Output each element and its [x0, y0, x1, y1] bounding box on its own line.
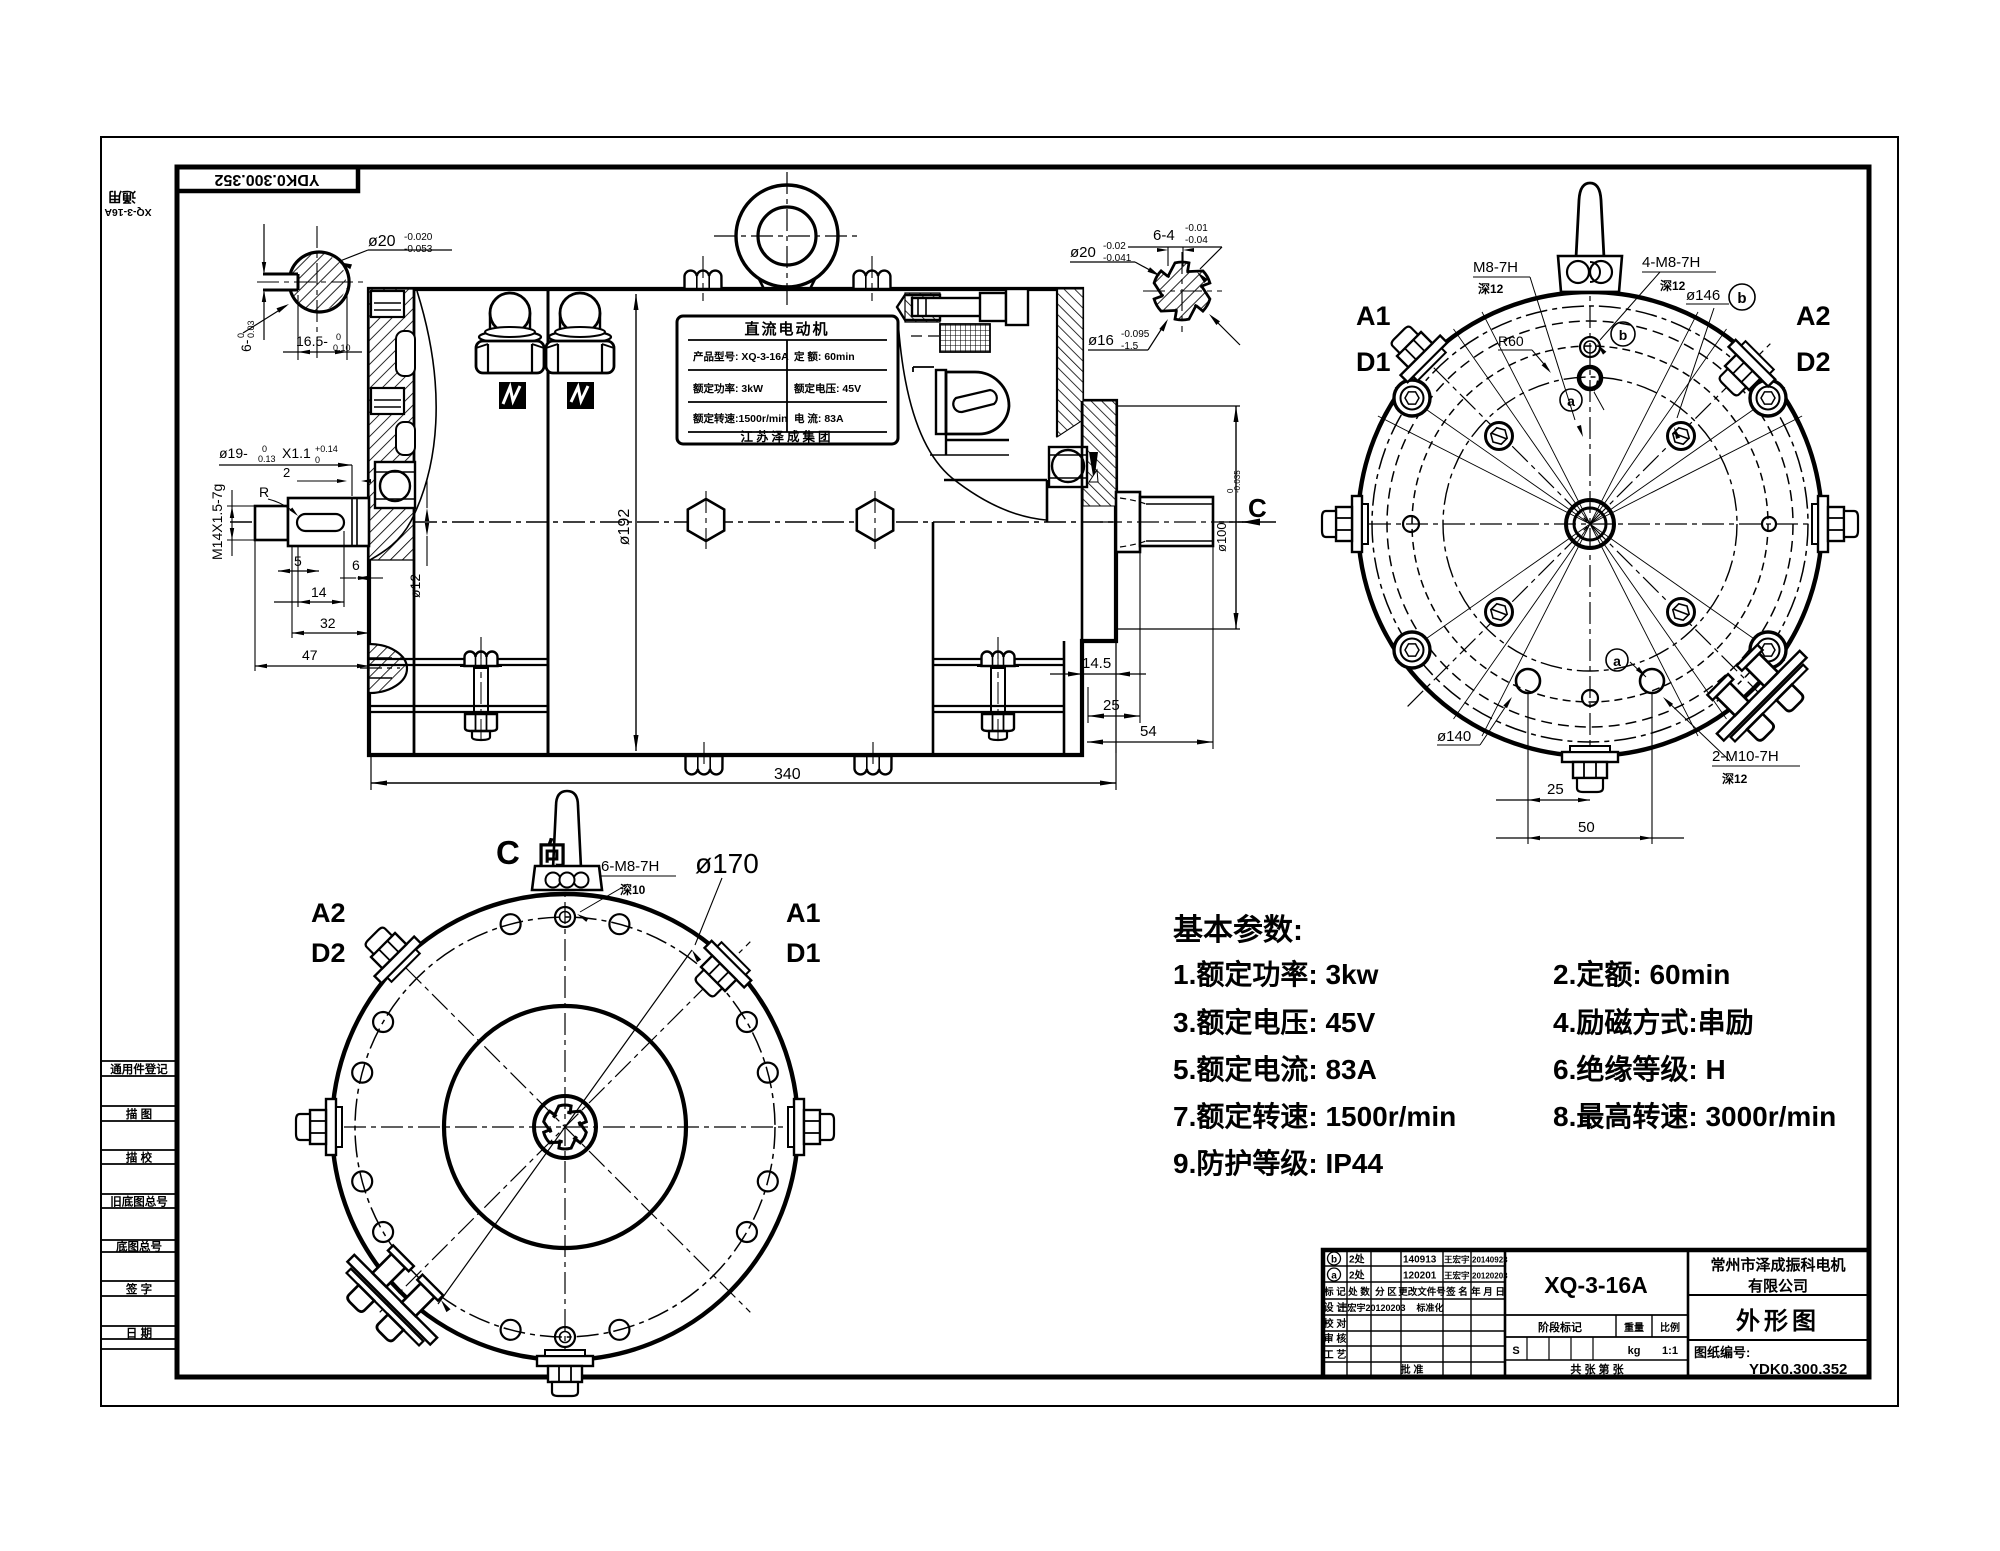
- svg-text:2处: 2处: [1349, 1253, 1366, 1266]
- svg-text:工 艺: 工 艺: [1324, 1348, 1347, 1361]
- svg-text:校 对: 校 对: [1324, 1317, 1347, 1330]
- svg-text:-0.035: -0.035: [1233, 470, 1242, 493]
- svg-text:额定转速:1500r/min: 额定转速:1500r/min: [692, 412, 788, 425]
- svg-text:ø19-: ø19-: [219, 445, 248, 461]
- svg-text:底图总号: 底图总号: [116, 1240, 162, 1254]
- svg-text:0: 0: [336, 332, 341, 342]
- svg-text:32: 32: [320, 615, 336, 631]
- svg-text:16.5-: 16.5-: [296, 333, 328, 349]
- svg-text:4.励磁方式:串励: 4.励磁方式:串励: [1553, 1006, 1754, 1038]
- svg-text:0.10: 0.10: [333, 343, 351, 353]
- svg-text:深10: 深10: [620, 882, 646, 897]
- svg-text:47: 47: [302, 647, 318, 663]
- svg-text:基本参数:: 基本参数:: [1173, 914, 1303, 947]
- svg-text:D1: D1: [1356, 347, 1391, 377]
- svg-text:2: 2: [283, 465, 290, 480]
- svg-text:20120203: 20120203: [1472, 1272, 1508, 1281]
- svg-text:外形图: 外形图: [1736, 1307, 1820, 1335]
- svg-text:ø20: ø20: [1070, 244, 1096, 261]
- svg-text:14: 14: [311, 584, 327, 600]
- svg-text:R60: R60: [1498, 333, 1524, 349]
- svg-text:-0.095: -0.095: [1121, 329, 1150, 340]
- svg-text:4-M8-7H: 4-M8-7H: [1642, 254, 1700, 271]
- svg-text:M8-7H: M8-7H: [1473, 259, 1518, 276]
- svg-text:通用件登记: 通用件登记: [110, 1062, 168, 1076]
- svg-text:2处: 2处: [1349, 1269, 1366, 1282]
- svg-text:批 准: 批 准: [1401, 1363, 1424, 1376]
- svg-text:标准化: 标准化: [1415, 1302, 1443, 1313]
- svg-text:a: a: [1567, 393, 1575, 409]
- svg-text:X1.1: X1.1: [282, 445, 311, 461]
- svg-text:5: 5: [294, 553, 302, 569]
- svg-text:XQ-3-16A: XQ-3-16A: [1544, 1272, 1648, 1298]
- svg-text:1.额定功率: 3kw: 1.额定功率: 3kw: [1173, 958, 1379, 990]
- svg-text:6.绝缘等级: H: 6.绝缘等级: H: [1553, 1053, 1726, 1085]
- svg-text:阶段标记: 阶段标记: [1538, 1320, 1582, 1334]
- svg-text:A1: A1: [786, 898, 821, 928]
- svg-text:kg: kg: [1628, 1345, 1641, 1357]
- svg-text:额定功率: 3kW: 额定功率: 3kW: [692, 382, 763, 395]
- svg-text:ø16: ø16: [1088, 332, 1114, 349]
- svg-text:有限公司: 有限公司: [1748, 1277, 1808, 1295]
- svg-text:8.最高转速: 3000r/min: 8.最高转速: 3000r/min: [1553, 1101, 1836, 1132]
- svg-text:0: 0: [262, 444, 267, 454]
- svg-text:0.03: 0.03: [246, 320, 256, 338]
- svg-text:直流电动机: 直流电动机: [744, 320, 829, 338]
- svg-text:标 记: 标 记: [1323, 1286, 1346, 1298]
- svg-text:6: 6: [352, 557, 360, 573]
- svg-text:YDK0.300.352: YDK0.300.352: [214, 171, 319, 188]
- svg-text:A1: A1: [1356, 301, 1391, 331]
- svg-text:a: a: [1331, 1271, 1337, 1282]
- svg-text:额定电压: 45V: 额定电压: 45V: [793, 382, 861, 395]
- svg-text:审 核: 审 核: [1324, 1332, 1347, 1345]
- svg-text:ø100: ø100: [1214, 522, 1229, 552]
- svg-text:更改文件号: 更改文件号: [1398, 1286, 1446, 1298]
- svg-text:处 数: 处 数: [1347, 1286, 1370, 1298]
- svg-text:ø170: ø170: [695, 848, 759, 879]
- svg-text:7.额定转速: 1500r/min: 7.额定转速: 1500r/min: [1173, 1100, 1456, 1132]
- svg-text:深12: 深12: [1722, 771, 1748, 786]
- svg-text:6-: 6-: [238, 339, 254, 352]
- svg-text:120201: 120201: [1403, 1271, 1437, 1282]
- svg-text:2-M10-7H: 2-M10-7H: [1712, 748, 1779, 765]
- svg-text:6-M8-7H: 6-M8-7H: [601, 858, 659, 875]
- svg-text:重量: 重量: [1624, 1321, 1644, 1334]
- svg-text:定 额: 60min: 定 额: 60min: [793, 350, 855, 363]
- svg-text:通用: 通用: [108, 189, 136, 205]
- svg-text:A2: A2: [311, 898, 346, 928]
- svg-text:王宏宇20120203: 王宏宇20120203: [1338, 1302, 1405, 1313]
- svg-text:D2: D2: [311, 938, 346, 968]
- svg-text:王宏宇: 王宏宇: [1444, 1271, 1470, 1281]
- svg-text:日 期: 日 期: [126, 1326, 152, 1340]
- svg-text:a: a: [1613, 653, 1621, 669]
- svg-text:2.定额: 60min: 2.定额: 60min: [1553, 958, 1730, 990]
- svg-text:ø140: ø140: [1437, 728, 1471, 745]
- svg-text:340: 340: [774, 766, 801, 783]
- svg-text:b: b: [1619, 327, 1628, 343]
- svg-text:50: 50: [1578, 819, 1595, 836]
- svg-text:产品型号: XQ-3-16A: 产品型号: XQ-3-16A: [693, 350, 789, 363]
- svg-text:25: 25: [1547, 781, 1564, 798]
- svg-text:分 区: 分 区: [1375, 1286, 1397, 1298]
- svg-text:电 流: 83A: 电 流: 83A: [794, 412, 844, 425]
- svg-text:ø20: ø20: [368, 233, 396, 250]
- svg-text:5.额定电流: 83A: 5.额定电流: 83A: [1173, 1053, 1377, 1085]
- svg-text:XQ-3-16A: XQ-3-16A: [104, 206, 152, 218]
- svg-text:ø192: ø192: [616, 509, 633, 546]
- svg-text:江苏泽成集团: 江苏泽成集团: [740, 429, 833, 444]
- svg-text:向: 向: [537, 838, 567, 871]
- svg-text:描 校: 描 校: [126, 1151, 153, 1165]
- svg-text:3.额定电压: 45V: 3.额定电压: 45V: [1173, 1006, 1376, 1038]
- svg-text:A2: A2: [1796, 301, 1831, 331]
- svg-text:1:1: 1:1: [1662, 1345, 1678, 1357]
- svg-text:描 图: 描 图: [126, 1107, 152, 1121]
- svg-text:比例: 比例: [1660, 1321, 1680, 1334]
- svg-text:年 月 日: 年 月 日: [1471, 1286, 1505, 1298]
- svg-text:D1: D1: [786, 938, 821, 968]
- svg-text:0: 0: [315, 455, 320, 465]
- svg-text:共 张 第 张: 共 张 第 张: [1570, 1362, 1624, 1376]
- svg-text:深12: 深12: [1478, 281, 1504, 296]
- svg-text:0.13: 0.13: [258, 454, 276, 464]
- svg-text:20140923: 20140923: [1472, 1256, 1508, 1265]
- svg-text:R: R: [259, 484, 269, 500]
- svg-text:9.防护等级: IP44: 9.防护等级: IP44: [1173, 1147, 1383, 1179]
- svg-text:+0.14: +0.14: [315, 444, 338, 454]
- svg-text:-0.02: -0.02: [1103, 241, 1126, 252]
- svg-text:-0.020: -0.020: [404, 232, 433, 243]
- svg-text:ø146: ø146: [1686, 287, 1720, 304]
- svg-text:-0.01: -0.01: [1185, 223, 1208, 234]
- svg-text:6-4: 6-4: [1153, 227, 1175, 244]
- svg-text:14.5: 14.5: [1082, 655, 1111, 672]
- svg-text:b: b: [1331, 1255, 1337, 1266]
- svg-text:王宏宇: 王宏宇: [1444, 1255, 1470, 1265]
- svg-text:54: 54: [1140, 723, 1157, 740]
- svg-text:深12: 深12: [1660, 278, 1686, 293]
- svg-text:b: b: [1737, 290, 1746, 307]
- svg-text:C: C: [496, 834, 520, 871]
- svg-text:C: C: [1248, 493, 1267, 523]
- svg-text:图纸编号:: 图纸编号:: [1694, 1345, 1750, 1360]
- svg-text:140913: 140913: [1403, 1255, 1437, 1266]
- svg-text:-0.04: -0.04: [1185, 235, 1208, 246]
- svg-text:签 字: 签 字: [125, 1282, 152, 1296]
- svg-text:25: 25: [1103, 697, 1120, 714]
- svg-text:签 名: 签 名: [1445, 1286, 1468, 1298]
- svg-text:ø12: ø12: [407, 574, 423, 598]
- svg-text:M14X1.5-7g: M14X1.5-7g: [209, 484, 225, 560]
- svg-text:旧底图总号: 旧底图总号: [110, 1195, 168, 1209]
- svg-text:D2: D2: [1796, 347, 1831, 377]
- svg-text:YDK0.300.352: YDK0.300.352: [1749, 1361, 1847, 1378]
- svg-text:常州市泽成振科电机: 常州市泽成振科电机: [1710, 1256, 1845, 1274]
- svg-text:0: 0: [236, 333, 246, 338]
- svg-text:S: S: [1512, 1345, 1519, 1357]
